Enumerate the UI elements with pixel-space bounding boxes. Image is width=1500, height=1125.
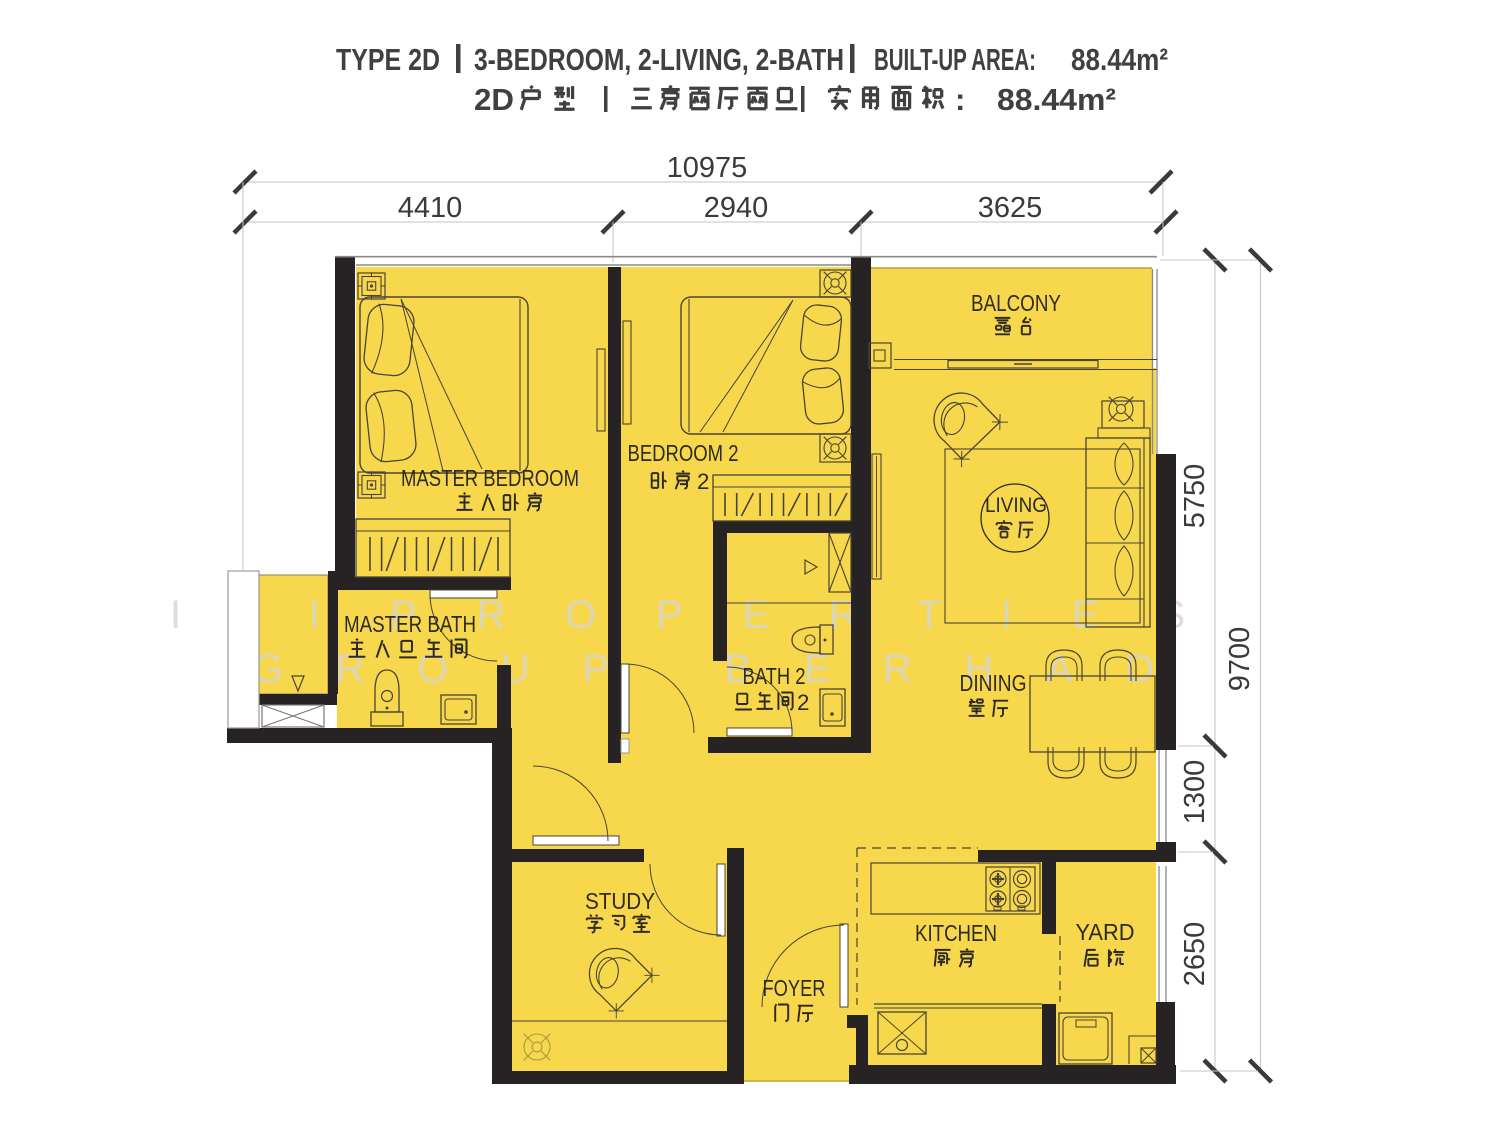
svg-text::: : bbox=[955, 82, 965, 117]
svg-text:9700: 9700 bbox=[1224, 627, 1256, 692]
svg-text:4410: 4410 bbox=[398, 192, 463, 224]
svg-text:BUILT-UP AREA:: BUILT-UP AREA: bbox=[874, 43, 1036, 77]
svg-text:BALCONY: BALCONY bbox=[971, 290, 1061, 316]
svg-text:3625: 3625 bbox=[978, 192, 1043, 224]
svg-text:10975: 10975 bbox=[667, 152, 748, 184]
svg-text:BATH 2: BATH 2 bbox=[743, 663, 806, 689]
svg-text:5750: 5750 bbox=[1179, 464, 1211, 529]
svg-text:2D: 2D bbox=[474, 82, 514, 117]
svg-text:MASTER BATH: MASTER BATH bbox=[344, 611, 476, 637]
svg-text:TYPE 2D: TYPE 2D bbox=[336, 43, 440, 77]
svg-text:88.44m²: 88.44m² bbox=[1071, 43, 1168, 77]
svg-text:2940: 2940 bbox=[704, 192, 769, 224]
svg-text:2: 2 bbox=[797, 690, 809, 715]
svg-text:BEDROOM 2: BEDROOM 2 bbox=[628, 440, 739, 466]
svg-text:2650: 2650 bbox=[1179, 922, 1211, 987]
svg-text:MASTER BEDROOM: MASTER BEDROOM bbox=[401, 465, 579, 491]
svg-text:3-BEDROOM, 2-LIVING, 2-BATH: 3-BEDROOM, 2-LIVING, 2-BATH bbox=[474, 43, 844, 77]
svg-text:1300: 1300 bbox=[1179, 760, 1211, 825]
svg-text:2: 2 bbox=[697, 469, 709, 494]
svg-text:YARD: YARD bbox=[1076, 919, 1135, 945]
svg-text:DINING: DINING bbox=[960, 670, 1027, 696]
svg-text:KITCHEN: KITCHEN bbox=[915, 920, 997, 946]
svg-text:88.44m²: 88.44m² bbox=[997, 82, 1116, 117]
svg-text:FOYER: FOYER bbox=[763, 975, 826, 1001]
svg-text:STUDY: STUDY bbox=[585, 888, 655, 914]
svg-text:LIVING: LIVING bbox=[985, 494, 1047, 517]
